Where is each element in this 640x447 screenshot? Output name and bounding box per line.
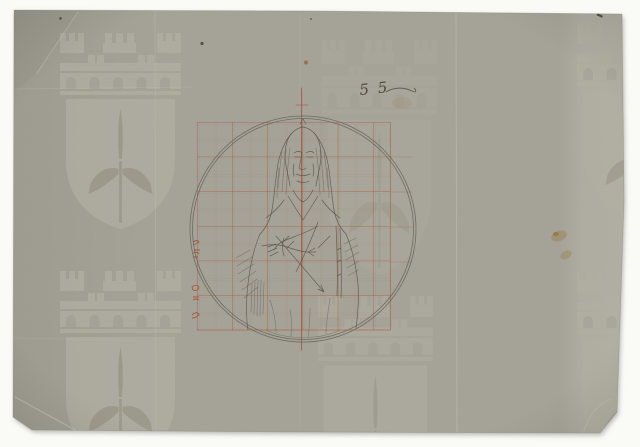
scan-background: 5 5	[0, 0, 640, 447]
edge-vignette	[13, 10, 624, 434]
scan-image: 5 5	[0, 0, 640, 447]
